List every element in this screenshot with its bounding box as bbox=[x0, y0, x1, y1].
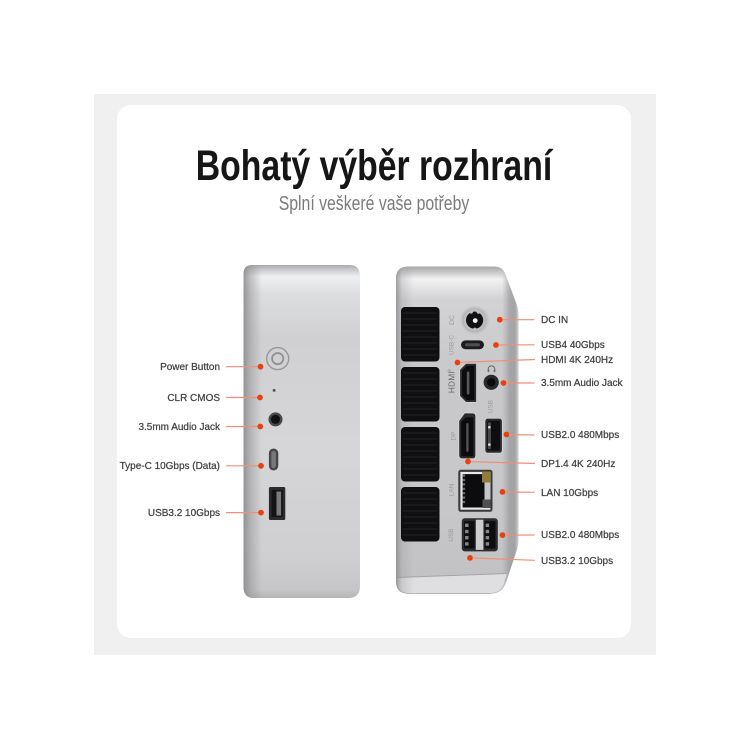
svg-text:USB: USB bbox=[488, 400, 495, 413]
svg-text:USB: USB bbox=[448, 528, 455, 541]
svg-text:HDMI: HDMI bbox=[448, 371, 457, 393]
svg-text:LAN: LAN bbox=[449, 483, 456, 496]
svg-text:USB-C: USB-C bbox=[449, 335, 456, 355]
svg-text:DC: DC bbox=[449, 315, 456, 325]
svg-text:DP: DP bbox=[451, 432, 458, 441]
